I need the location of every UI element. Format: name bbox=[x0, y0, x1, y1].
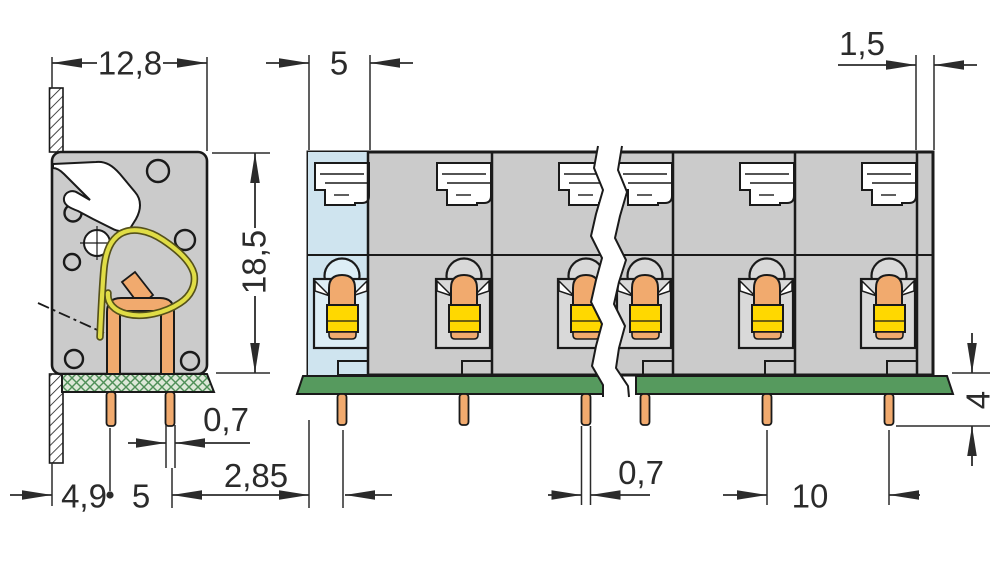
dim-label-side-wall-to-pin: 4,9 bbox=[61, 478, 107, 515]
dim-label-side-pin-to-face: 2,85 bbox=[224, 457, 288, 494]
dimension-side-wall-to-pin: 4,9 5 bbox=[10, 428, 150, 515]
clamp-contact bbox=[329, 275, 355, 307]
dimension-front-edge-margin: 1,5 bbox=[838, 25, 977, 150]
dim-label-front-cell-width: 5 bbox=[330, 45, 348, 82]
clamp-foot bbox=[573, 332, 600, 339]
dimension-side-height: 18,5 bbox=[212, 153, 273, 373]
actuator-yellow bbox=[449, 305, 480, 332]
technical-drawing-page: 12,8 5 1,5 bbox=[0, 0, 1000, 574]
dim-label-side-height: 18,5 bbox=[236, 230, 273, 294]
dim-label-side-pin-spacing: 5 bbox=[132, 478, 150, 515]
wall-hatch-top bbox=[50, 88, 64, 152]
dim-dot bbox=[106, 491, 113, 498]
pcb-side bbox=[62, 374, 214, 392]
side-solder-pins bbox=[107, 392, 175, 426]
clamp-foot bbox=[329, 332, 356, 339]
clamp-contact bbox=[876, 275, 902, 307]
actuator-yellow bbox=[630, 305, 661, 332]
dimension-front-pin-pitch: 10 bbox=[723, 430, 920, 515]
dim-label-pin-length: 4 bbox=[960, 391, 997, 409]
pcb-pin bbox=[582, 394, 591, 425]
clamp-contact bbox=[754, 275, 780, 307]
clamp-foot bbox=[632, 332, 659, 339]
dim-label-front-pin-width: 0,7 bbox=[618, 454, 664, 491]
side-view bbox=[38, 88, 214, 463]
pcb-pin bbox=[641, 394, 650, 425]
clamp-foot bbox=[451, 332, 478, 339]
clamp-contact bbox=[632, 275, 658, 307]
dimension-side-overall-width: 12,8 bbox=[52, 45, 207, 152]
clamp-foot bbox=[754, 332, 781, 339]
dim-label-side-overall-width: 12,8 bbox=[98, 45, 162, 82]
front-view bbox=[297, 146, 953, 425]
dimension-front-pin-width: 0,7 bbox=[548, 426, 664, 505]
wall-hatch-bottom bbox=[50, 374, 64, 463]
pcb-pin bbox=[460, 394, 469, 425]
clamp-foot bbox=[876, 332, 903, 339]
clamp-contact bbox=[451, 275, 477, 307]
dim-label-front-edge-margin: 1,5 bbox=[839, 25, 885, 62]
dimension-front-cell-width: 5 bbox=[266, 45, 413, 151]
pcb-pin bbox=[885, 394, 894, 425]
dim-label-front-pin-pitch: 10 bbox=[792, 478, 829, 515]
actuator-yellow bbox=[874, 305, 905, 332]
actuator-yellow bbox=[752, 305, 783, 332]
terminal-block-dimension-drawing: 12,8 5 1,5 bbox=[0, 0, 1000, 574]
dim-label-side-pin-width: 0,7 bbox=[203, 401, 249, 438]
pcb-pin bbox=[338, 394, 347, 425]
pcb-pin bbox=[763, 394, 772, 425]
actuator-yellow bbox=[327, 305, 358, 332]
